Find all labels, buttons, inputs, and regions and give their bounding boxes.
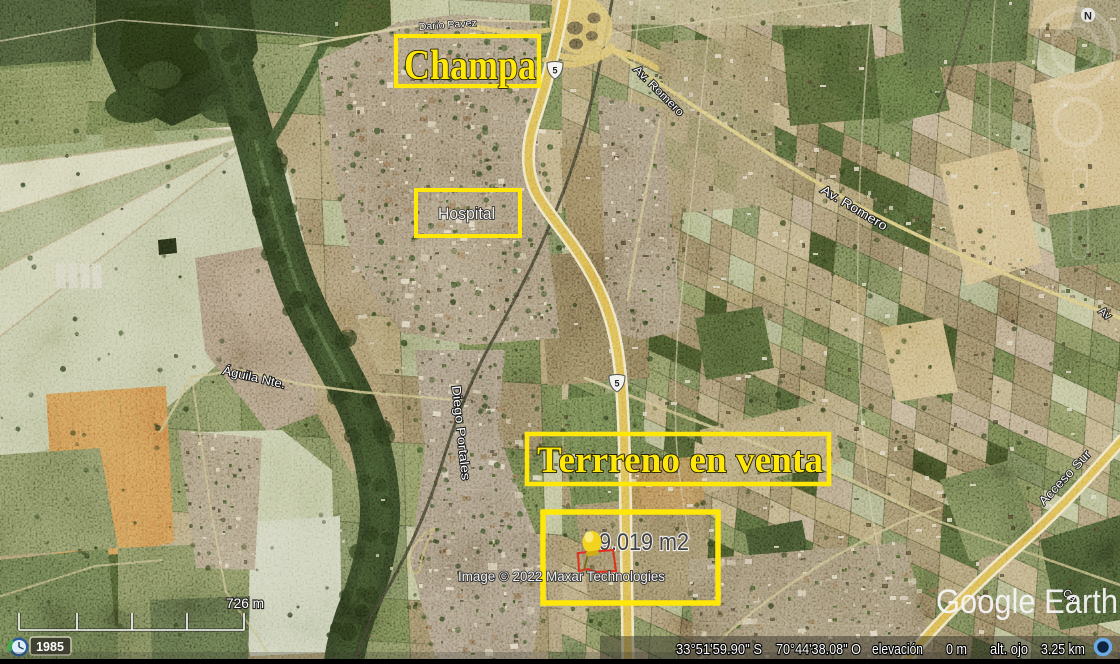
svg-text:Image © 2022 Maxar Technologie: Image © 2022 Maxar Technologies	[458, 569, 665, 584]
svg-text:70°44'38.08" O: 70°44'38.08" O	[776, 642, 861, 658]
svg-text:3.25 km: 3.25 km	[1041, 642, 1085, 658]
svg-text:Champa: Champa	[404, 43, 536, 89]
svg-text:Google Earth: Google Earth	[936, 583, 1118, 621]
svg-text:Terrreno en venta: Terrreno en venta	[537, 440, 823, 481]
svg-text:N: N	[1084, 11, 1092, 23]
svg-text:33°51'59.90" S: 33°51'59.90" S	[676, 642, 762, 658]
svg-text:alt. ojo: alt. ojo	[990, 642, 1028, 658]
svg-text:Hospital: Hospital	[438, 205, 495, 223]
svg-text:5: 5	[552, 66, 557, 76]
svg-text:5: 5	[614, 379, 619, 389]
svg-text:1985: 1985	[36, 640, 64, 654]
svg-text:0 m: 0 m	[946, 642, 967, 658]
svg-text:726 m: 726 m	[226, 595, 264, 611]
svg-text:elevación: elevación	[872, 642, 923, 658]
